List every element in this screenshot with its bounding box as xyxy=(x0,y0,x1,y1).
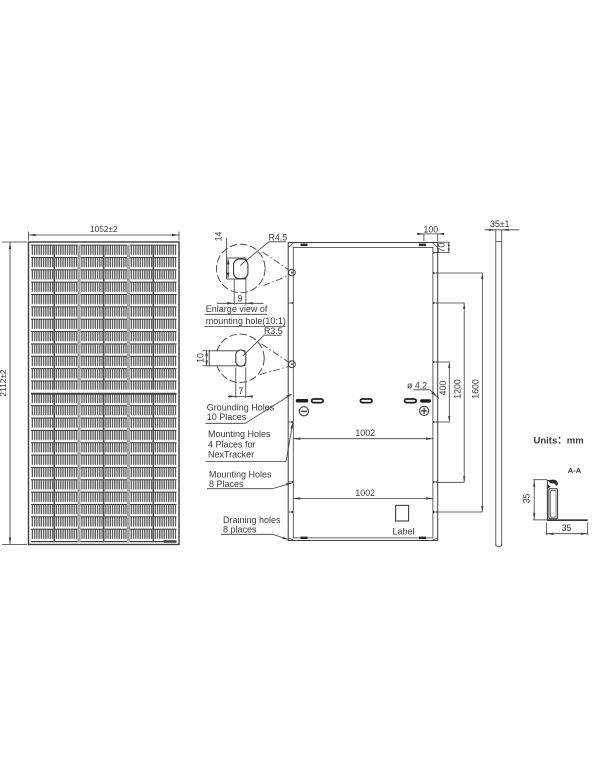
svg-text:NexTracker: NexTracker xyxy=(208,450,254,460)
svg-text:8 places: 8 places xyxy=(223,525,257,535)
svg-text:Enlarge view of: Enlarge view of xyxy=(206,304,268,314)
svg-text:Mounting Holes: Mounting Holes xyxy=(208,429,271,439)
svg-text:2112±2: 2112±2 xyxy=(0,369,8,397)
svg-text:9: 9 xyxy=(238,293,243,303)
svg-text:35: 35 xyxy=(521,494,531,504)
svg-text:14: 14 xyxy=(214,232,224,242)
svg-text:Units：mm: Units：mm xyxy=(534,436,584,447)
svg-text:100: 100 xyxy=(423,224,438,234)
svg-text:35±1: 35±1 xyxy=(490,219,510,229)
svg-text:1002: 1002 xyxy=(355,488,375,498)
svg-text:Draining holes: Draining holes xyxy=(223,515,281,525)
svg-text:R4.5: R4.5 xyxy=(269,232,288,242)
svg-text:8 Places: 8 Places xyxy=(209,479,244,489)
svg-text:R3.5: R3.5 xyxy=(264,326,283,336)
svg-text:10 Places: 10 Places xyxy=(207,412,247,422)
svg-text:1052±2: 1052±2 xyxy=(90,224,118,234)
svg-text:1600: 1600 xyxy=(470,379,480,399)
svg-text:70: 70 xyxy=(437,243,447,253)
svg-text:10: 10 xyxy=(196,353,206,363)
svg-text:4 Places for: 4 Places for xyxy=(208,440,256,450)
svg-text:mounting hole(10:1): mounting hole(10:1) xyxy=(206,316,286,326)
svg-text:1200: 1200 xyxy=(453,379,463,399)
svg-text:Label: Label xyxy=(392,526,414,536)
svg-text:400: 400 xyxy=(438,381,448,396)
svg-text:35: 35 xyxy=(562,523,572,533)
svg-text:A-A: A-A xyxy=(568,466,582,475)
svg-text:ø 4.2: ø 4.2 xyxy=(407,380,427,390)
svg-text:7: 7 xyxy=(238,386,243,396)
svg-text:1002: 1002 xyxy=(355,428,375,438)
